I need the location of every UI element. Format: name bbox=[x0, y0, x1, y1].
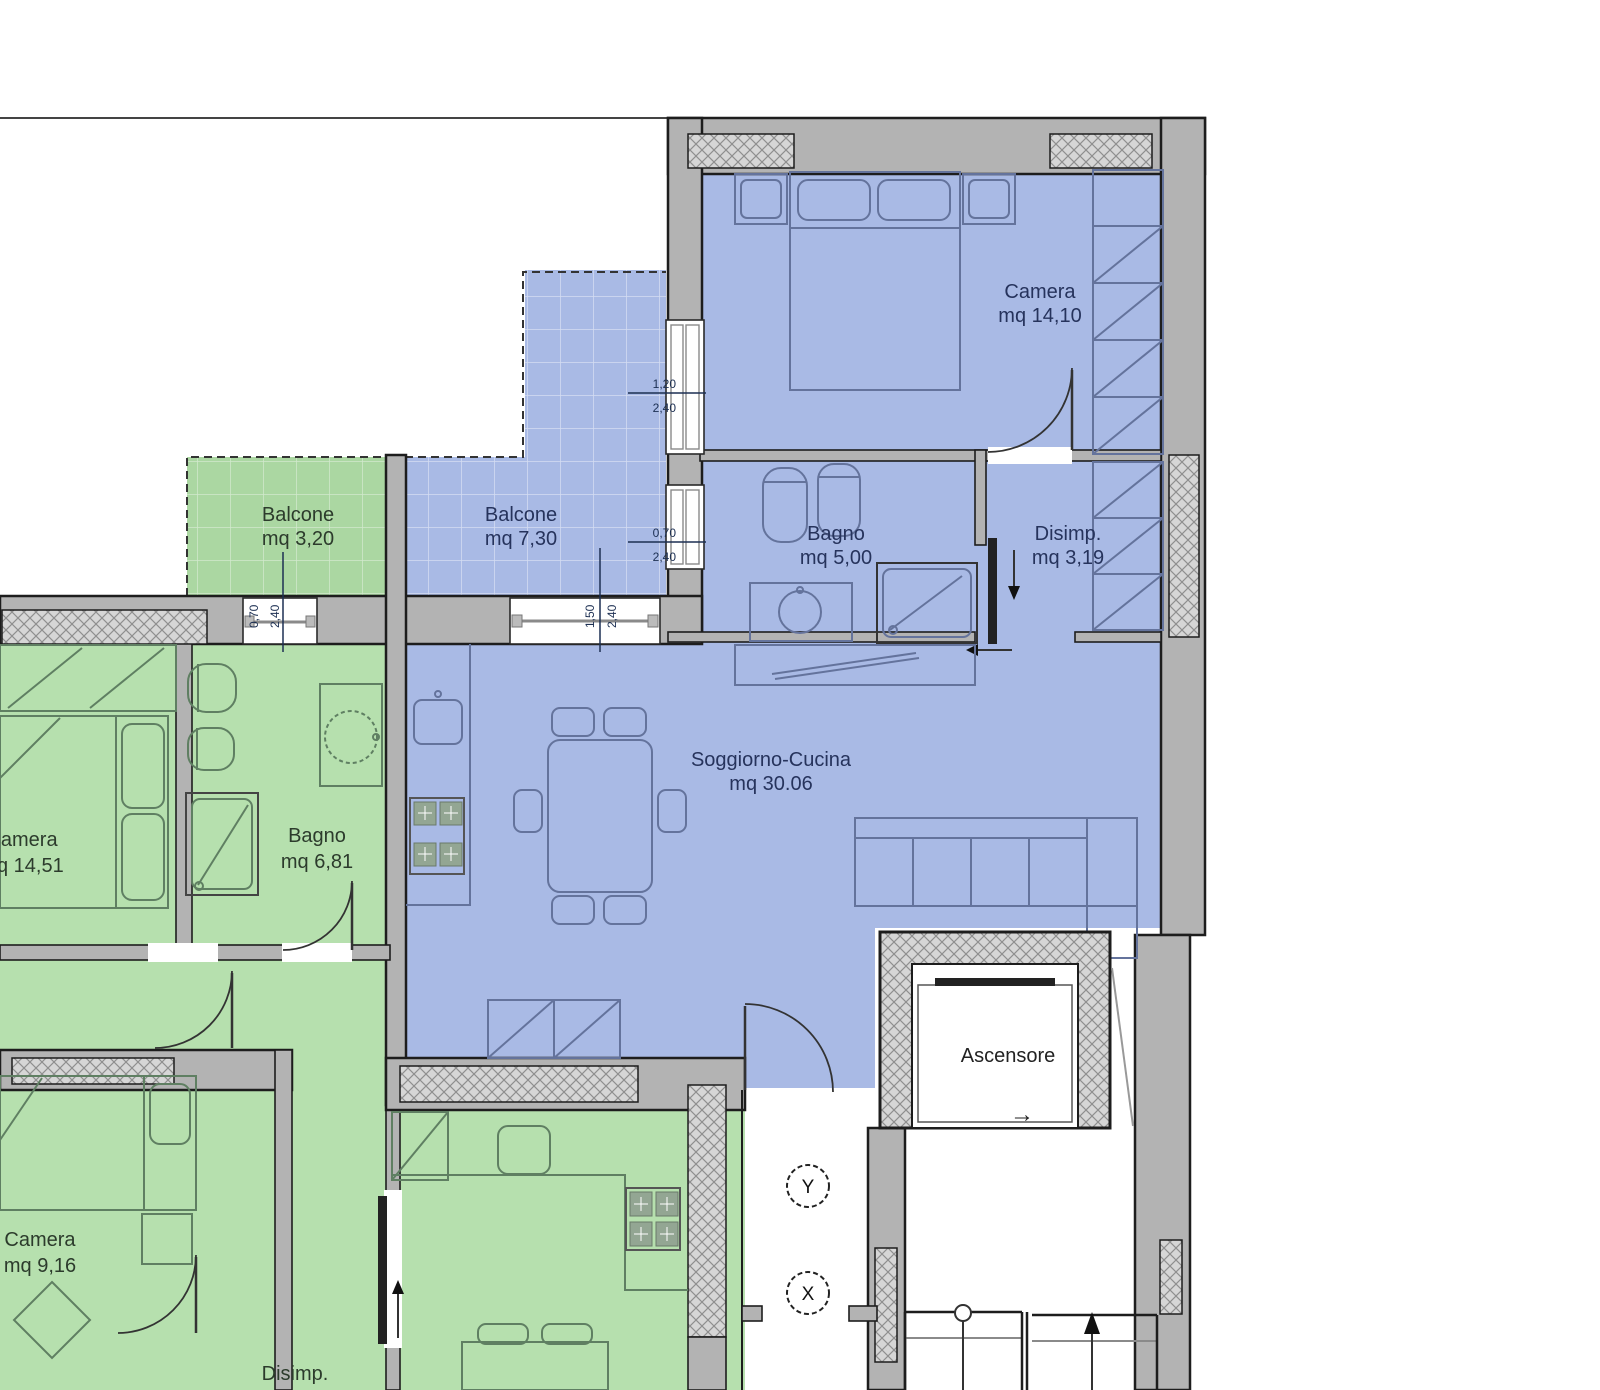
wall-pillar-hatched bbox=[688, 1085, 726, 1337]
room-label-camera-blue: Camera bbox=[1004, 281, 1076, 303]
dim-text: 1,50 bbox=[583, 604, 597, 628]
dim-text: 2,40 bbox=[653, 550, 677, 564]
dim-text: 2,40 bbox=[653, 401, 677, 415]
dim-text: 0,70 bbox=[653, 526, 677, 540]
room-area-camera-green1: mq 14,51 bbox=[0, 855, 64, 877]
door-opening-camera-green1 bbox=[148, 943, 218, 962]
hatch-stair-right bbox=[1160, 1240, 1182, 1314]
room-area-balcone-green: mq 3,20 bbox=[262, 528, 334, 550]
stair-start-circle bbox=[955, 1305, 971, 1321]
hatch-camera-divider bbox=[12, 1058, 174, 1084]
wall-camera2-corridor bbox=[275, 1050, 292, 1390]
wall-bagno-disimp bbox=[975, 450, 986, 545]
room-label-disimp-green: Disimp. bbox=[262, 1363, 329, 1385]
balcony-blue-tiles-upper bbox=[525, 270, 666, 457]
hatch-kitchen-top bbox=[400, 1066, 638, 1102]
dim-text: 0,70 bbox=[247, 604, 261, 628]
elevator-door-bar bbox=[935, 978, 1055, 986]
door-opening-camera-blue bbox=[988, 447, 1072, 464]
room-label-balcone-blue: Balcone bbox=[485, 504, 557, 526]
stairs bbox=[905, 1305, 1157, 1390]
room-area-bagno-green: mq 6,81 bbox=[281, 851, 353, 873]
elevator bbox=[880, 932, 1133, 1128]
floor-plan-page: Y X 1,20 2,40 0,70 2,40 1,50 2,40 0,70 2… bbox=[0, 0, 1600, 1390]
pocket-door-panel-green bbox=[378, 1196, 387, 1344]
door-opening-bagno-green bbox=[282, 943, 352, 962]
room-area-bagno-blue: mq 5,00 bbox=[800, 547, 872, 569]
room-label-camera-green1: Camera bbox=[0, 829, 58, 851]
wall-camera-bagno bbox=[700, 450, 1161, 461]
hatch-stair-left bbox=[875, 1248, 897, 1362]
section-marker-x-label: X bbox=[802, 1284, 815, 1305]
section-marker-y-label: Y bbox=[802, 1177, 815, 1198]
hatch-top-left bbox=[688, 134, 794, 168]
section-markers: Y X bbox=[787, 1165, 829, 1314]
room-area-disimp-blue: mq 3,19 bbox=[1032, 547, 1104, 569]
pocket-door-panel-blue bbox=[988, 538, 997, 644]
room-area-balcone-blue: mq 7,30 bbox=[485, 528, 557, 550]
corridor-jamb-right bbox=[849, 1306, 877, 1321]
balcony-blue-tiles-lower bbox=[392, 457, 666, 596]
room-area-soggiorno: mq 30.06 bbox=[729, 773, 812, 795]
room-fills bbox=[0, 172, 1161, 1390]
floor-plan: Y X 1,20 2,40 0,70 2,40 1,50 2,40 0,70 2… bbox=[0, 0, 1600, 1390]
hatch-right-wall bbox=[1169, 455, 1199, 637]
stairs-up-arrow bbox=[1084, 1312, 1100, 1390]
room-label-bagno-green: Bagno bbox=[288, 825, 346, 847]
room-label-ascensore: Ascensore bbox=[961, 1045, 1056, 1067]
apartment-green-area bbox=[0, 642, 388, 1390]
shaft-side-diagonal bbox=[1112, 968, 1133, 1126]
wall-soggiorno-left bbox=[386, 455, 406, 1105]
dim-text: 2,40 bbox=[605, 604, 619, 628]
room-area-camera-blue: mq 14,10 bbox=[998, 305, 1081, 327]
wall-pillar-base bbox=[688, 1337, 726, 1390]
dim-text: 1,20 bbox=[653, 377, 677, 391]
wall-green-camera-bagno bbox=[176, 642, 192, 958]
room-label-camera-green2: Camera bbox=[4, 1229, 76, 1251]
room-area-camera-green2: mq 9,16 bbox=[4, 1255, 76, 1277]
hatch-top-right bbox=[1050, 134, 1152, 168]
wall-right-lower bbox=[1135, 935, 1190, 1390]
dim-text: 2,40 bbox=[268, 604, 282, 628]
corridor-jamb-left bbox=[742, 1306, 762, 1321]
room-label-bagno-blue: Bagno bbox=[807, 523, 865, 545]
room-label-soggiorno: Soggiorno-Cucina bbox=[691, 749, 852, 771]
balcony-green-tiles bbox=[187, 457, 388, 596]
wall-disimp-bottom bbox=[1075, 632, 1161, 642]
hatch-main-wall bbox=[2, 610, 207, 644]
room-label-balcone-green: Balcone bbox=[262, 504, 334, 526]
room-label-disimp-blue: Disimp. bbox=[1035, 523, 1102, 545]
elevator-direction-arrow: → bbox=[1010, 1101, 1034, 1128]
